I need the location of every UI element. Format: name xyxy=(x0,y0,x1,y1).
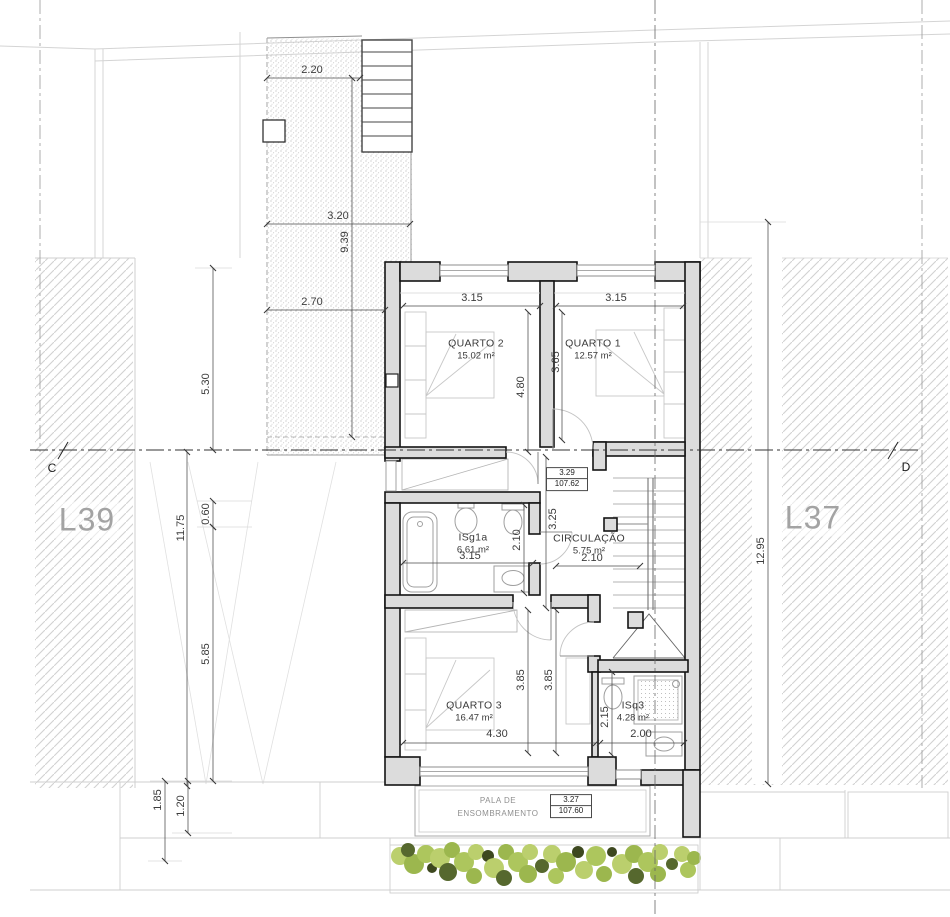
terrace-vent-box xyxy=(263,120,285,142)
level-marker-canopy: 3.27 107.60 xyxy=(550,794,592,818)
landscape-marks xyxy=(150,462,336,784)
room-name: QUARTO 2 xyxy=(448,338,504,351)
room-area: 4.28 m² xyxy=(617,713,649,725)
level-absolute: 107.60 xyxy=(551,807,591,817)
dim-circulacao-depth: 3.25 xyxy=(547,508,559,529)
counter-sink-isg1a xyxy=(494,566,534,592)
dim-terrace-mid: 3.20 xyxy=(327,210,348,222)
dim-isq3-depth: 2.15 xyxy=(599,706,611,727)
room-name: ISq3 xyxy=(617,700,649,713)
dim-canopy-depth: 1.85 xyxy=(152,789,164,810)
room-name: CIRCULAÇÃO xyxy=(553,533,625,546)
floor-plan: L39 L37 C D QUARTO 2 15.02 m² QUARTO 1 1… xyxy=(0,0,950,917)
dim-clearing xyxy=(752,222,782,784)
section-letter-c: C xyxy=(48,461,57,475)
room-label-quarto2: QUARTO 2 15.02 m² xyxy=(448,338,504,363)
dim-left-total: 11.75 xyxy=(175,515,187,542)
dim-left-upper: 5.30 xyxy=(200,373,212,394)
lot-label-l37: L37 xyxy=(781,500,845,537)
dim-isg1a-width: 3.15 xyxy=(459,550,480,562)
canopy-line2: ENSOMBRAMENTO xyxy=(457,808,538,821)
canopy-label: PALA DE ENSOMBRAMENTO xyxy=(457,795,538,821)
bathtub-isg1a xyxy=(403,512,437,592)
room-label-quarto1: QUARTO 1 12.57 m² xyxy=(565,338,621,363)
level-marker-circulacao: 3.29 107.62 xyxy=(546,467,588,491)
dim-circulacao-width: 2.10 xyxy=(581,552,602,564)
exterior-stair-ladder xyxy=(362,40,412,152)
room-area: 16.47 m² xyxy=(446,713,502,725)
dim-quarto2-depth: 4.80 xyxy=(515,376,527,397)
room-label-quarto3: QUARTO 3 16.47 m² xyxy=(446,700,502,725)
dim-right-total: 12.95 xyxy=(755,537,767,565)
handrail-post xyxy=(604,518,617,531)
level-absolute: 107.62 xyxy=(547,480,587,490)
hedge xyxy=(390,842,701,893)
dim-left-lower: 5.85 xyxy=(200,643,212,664)
dim-isg1a-depth: 2.10 xyxy=(511,529,523,550)
dim-quarto1-width: 3.15 xyxy=(605,292,626,304)
canopy-line1: PALA DE xyxy=(457,795,538,808)
room-name: QUARTO 1 xyxy=(565,338,621,351)
dim-terrace-top: 2.20 xyxy=(301,64,322,76)
dim-terrace-height: 9.39 xyxy=(339,231,351,252)
room-name: QUARTO 3 xyxy=(446,700,502,713)
dim-quarto1-depth: 3.65 xyxy=(550,351,562,372)
dim-quarto3-depth-b: 3.85 xyxy=(543,669,555,690)
room-name: ISg1a xyxy=(457,532,489,545)
dim-quarto3-width: 4.30 xyxy=(486,728,507,740)
dim-quarto2-width: 3.15 xyxy=(461,292,482,304)
dim-quarto3-depth-a: 3.85 xyxy=(515,669,527,690)
room-area: 12.57 m² xyxy=(565,351,621,363)
dim-left-offset: 0.60 xyxy=(200,503,212,524)
room-label-isq3: ISq3 4.28 m² xyxy=(617,700,649,725)
plan-drawing xyxy=(0,0,950,917)
wall-vent xyxy=(386,374,398,387)
stair-wall-stub xyxy=(628,612,643,628)
level-relative: 3.27 xyxy=(551,795,591,806)
level-relative: 3.29 xyxy=(547,468,587,479)
sink-isg1a xyxy=(455,503,477,534)
dim-terrace-bottom: 2.70 xyxy=(301,296,322,308)
section-letter-d: D xyxy=(902,460,911,474)
lot-label-l39: L39 xyxy=(55,502,119,539)
dim-isq3-width: 2.00 xyxy=(630,728,651,740)
dim-canopy-inner: 1.20 xyxy=(175,795,187,816)
room-area: 15.02 m² xyxy=(448,351,504,363)
